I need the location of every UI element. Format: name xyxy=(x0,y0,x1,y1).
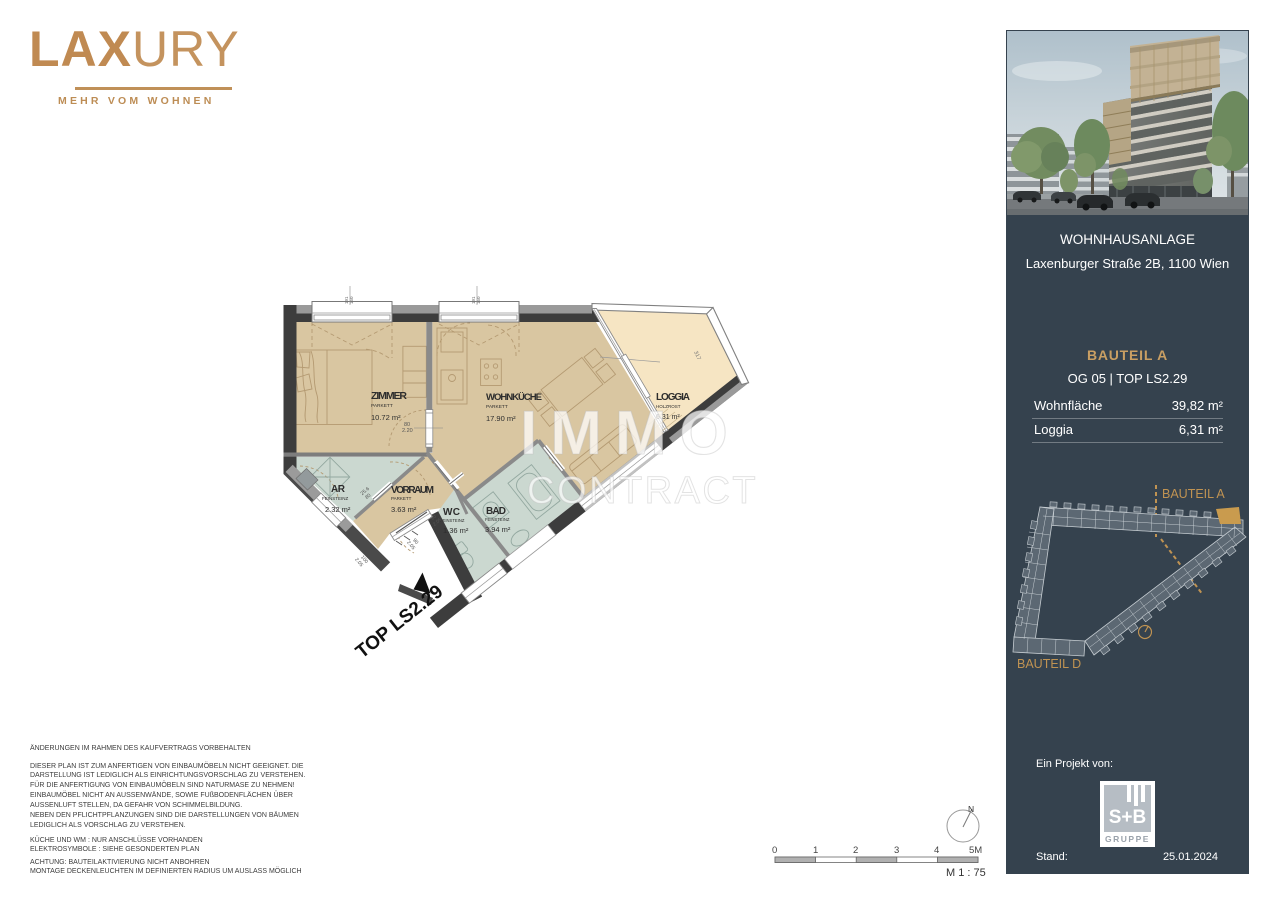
svg-text:FEINSTEINZ: FEINSTEINZ xyxy=(440,518,465,523)
svg-text:2.20: 2.20 xyxy=(402,428,413,434)
svg-text:PARKETT: PARKETT xyxy=(486,404,508,410)
svg-text:2: 2 xyxy=(853,845,858,856)
svg-text:WC: WC xyxy=(443,507,460,518)
svg-text:AR: AR xyxy=(331,484,346,495)
svg-text:4: 4 xyxy=(934,845,939,856)
svg-text:1.36 m²: 1.36 m² xyxy=(443,526,469,535)
svg-text:2.32 m²: 2.32 m² xyxy=(325,505,351,514)
svg-text:BAUTEIL A: BAUTEIL A xyxy=(1162,487,1225,501)
svg-text:10.72 m²: 10.72 m² xyxy=(371,413,401,422)
svg-text:3: 3 xyxy=(894,845,899,856)
svg-text:CONTRACT: CONTRACT xyxy=(527,470,758,512)
svg-text:FEINSTEINZ: FEINSTEINZ xyxy=(322,496,349,501)
svg-text:PARKETT: PARKETT xyxy=(371,403,393,409)
svg-text:TOP LS2.29: TOP LS2.29 xyxy=(352,581,447,663)
svg-text:FEINSTEINZ: FEINSTEINZ xyxy=(485,517,510,522)
svg-text:5M: 5M xyxy=(969,845,982,856)
svg-text:17.90 m²: 17.90 m² xyxy=(486,414,516,423)
svg-text:3.94 m²: 3.94 m² xyxy=(485,525,511,534)
svg-text:BAUTEIL D: BAUTEIL D xyxy=(1017,657,1081,671)
svg-text:M 1 : 75: M 1 : 75 xyxy=(946,867,986,879)
svg-text:ZIMMER: ZIMMER xyxy=(371,390,407,402)
svg-text:0: 0 xyxy=(772,845,777,856)
svg-text:VORRAUM: VORRAUM xyxy=(391,485,434,496)
svg-text:N: N xyxy=(968,804,974,814)
svg-text:PARKETT: PARKETT xyxy=(391,496,412,501)
svg-text:3.63 m²: 3.63 m² xyxy=(391,505,417,514)
svg-text:1: 1 xyxy=(813,845,818,856)
svg-text:BAD: BAD xyxy=(486,506,506,517)
svg-text:IMMO: IMMO xyxy=(520,399,741,468)
